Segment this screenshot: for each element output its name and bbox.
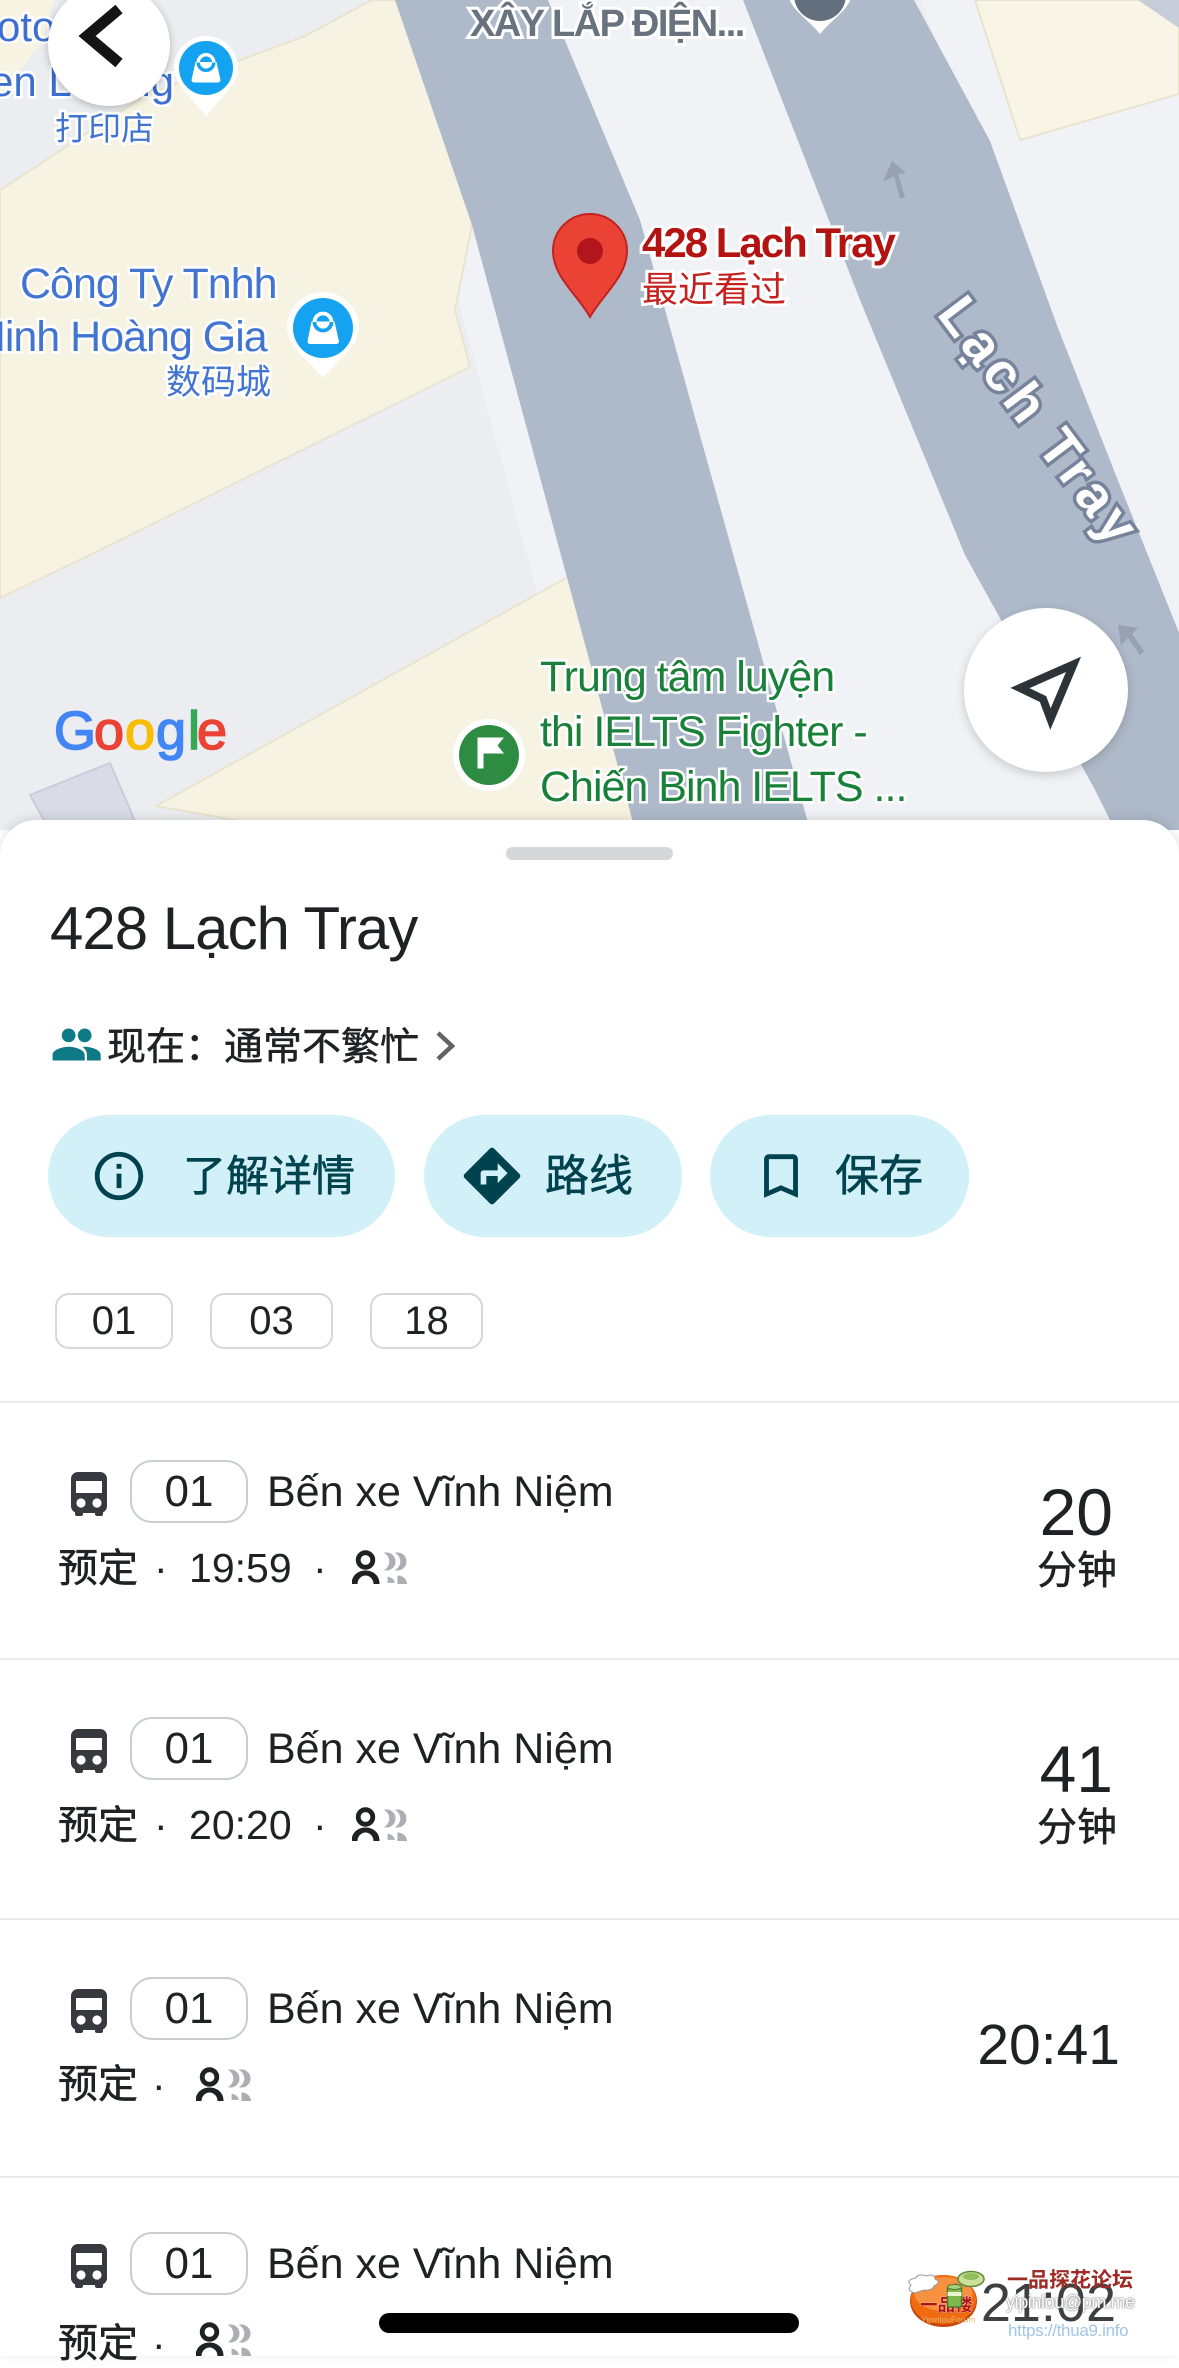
svg-text:g: g <box>156 701 186 761</box>
svg-text:e: e <box>197 701 227 761</box>
svg-text:o: o <box>94 701 124 761</box>
svg-text:Minh Hoàng Gia: Minh Hoàng Gia <box>0 313 268 361</box>
svg-text:o: o <box>125 701 155 761</box>
svg-text:G: G <box>54 701 96 761</box>
svg-text:Chiến Binh IELTS ...: Chiến Binh IELTS ... <box>540 763 906 811</box>
svg-text:YipinlouForum: YipinlouForum <box>921 2315 976 2325</box>
svg-text:Công Ty Tnhh: Công Ty Tnhh <box>20 260 277 308</box>
svg-text:428 Lạch Tray: 428 Lạch Tray <box>642 219 896 266</box>
svg-text:XÂY LẮP ĐIỆN...: XÂY LẮP ĐIỆN... <box>470 1 744 45</box>
svg-text:Trung tâm luyện: Trung tâm luyện <box>540 653 834 701</box>
svg-text:thi IELTS Fighter -: thi IELTS Fighter - <box>540 708 867 756</box>
